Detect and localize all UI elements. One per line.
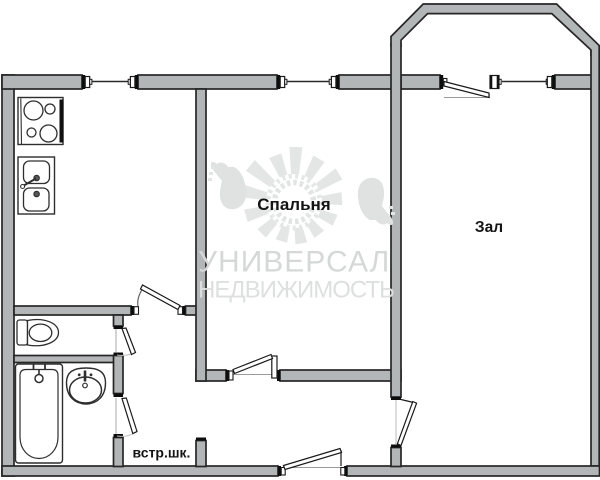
svg-text:Спальня: Спальня [257, 195, 330, 214]
svg-text:встр.шк.: встр.шк. [133, 445, 191, 461]
svg-text:Зал: Зал [475, 219, 503, 236]
svg-text:НЕДВИЖИМОСТЬ: НЕДВИЖИМОСТЬ [198, 277, 394, 304]
svg-text:УНИВЕРСАЛ: УНИВЕРСАЛ [198, 246, 390, 279]
